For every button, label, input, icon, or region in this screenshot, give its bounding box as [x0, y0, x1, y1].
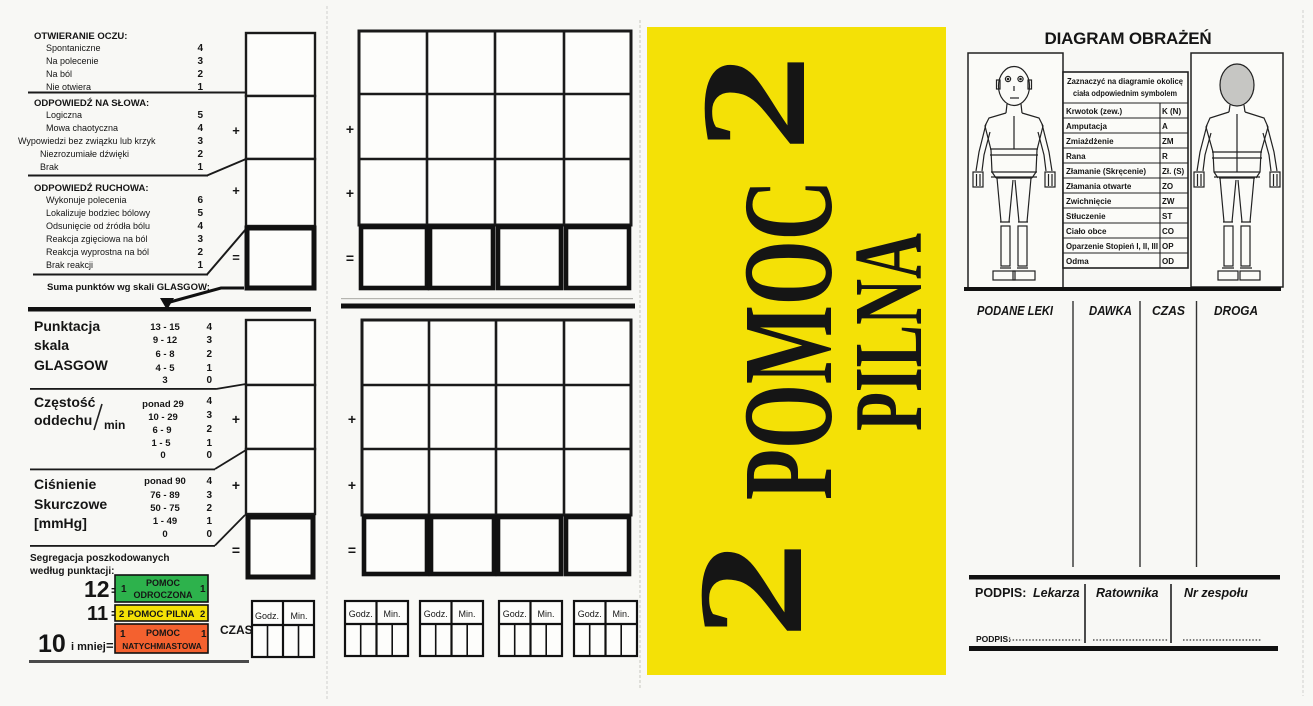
svg-text:3: 3 — [206, 410, 212, 421]
svg-text:i mniej: i mniej — [71, 641, 106, 653]
svg-text:10 - 29: 10 - 29 — [148, 412, 178, 423]
svg-text:Min.: Min. — [290, 611, 307, 621]
svg-text:1 - 49: 1 - 49 — [153, 516, 177, 527]
svg-text:POMOC: POMOC — [146, 628, 181, 638]
svg-text:1: 1 — [120, 629, 126, 640]
svg-text:2: 2 — [206, 503, 212, 514]
svg-text:2: 2 — [119, 609, 124, 620]
svg-text:=: = — [348, 542, 356, 558]
svg-text:11: 11 — [87, 603, 108, 625]
svg-text:=: = — [346, 250, 354, 266]
svg-text:POMOC PILNA: POMOC PILNA — [127, 609, 194, 620]
svg-text:4: 4 — [197, 123, 203, 134]
svg-text:4: 4 — [206, 476, 212, 487]
svg-text:1 - 5: 1 - 5 — [151, 438, 171, 449]
svg-text:ponad 90: ponad 90 — [144, 476, 186, 487]
svg-text:1: 1 — [200, 584, 206, 595]
svg-text:Ratownika: Ratownika — [1096, 586, 1159, 600]
svg-text:1: 1 — [197, 82, 203, 93]
svg-text:CZAS: CZAS — [1152, 303, 1185, 318]
svg-text:5: 5 — [197, 110, 203, 121]
svg-text:3: 3 — [206, 335, 212, 346]
svg-text:PILNA: PILNA — [835, 233, 943, 431]
svg-text:PODPIS:: PODPIS: — [976, 634, 1011, 644]
svg-text:6 - 8: 6 - 8 — [155, 349, 174, 360]
svg-text:3: 3 — [162, 375, 167, 386]
svg-text:Na polecenie: Na polecenie — [46, 56, 99, 66]
svg-text:Amputacja: Amputacja — [1066, 122, 1107, 131]
svg-text:Oparzenie Stopień I, II, III: Oparzenie Stopień I, II, III — [1066, 242, 1158, 251]
svg-text:Odsunięcie od źródła bólu: Odsunięcie od źródła bólu — [46, 221, 150, 231]
svg-text:2: 2 — [668, 541, 834, 639]
svg-text:1: 1 — [197, 162, 203, 173]
svg-text:3: 3 — [206, 490, 212, 501]
svg-text:R: R — [1162, 152, 1168, 161]
svg-text:5: 5 — [197, 208, 203, 219]
svg-text:[mmHg]: [mmHg] — [34, 515, 87, 531]
svg-text:Złamanie (Skręcenie): Złamanie (Skręcenie) — [1066, 167, 1146, 176]
svg-text:PODPIS:: PODPIS: — [975, 586, 1026, 600]
svg-text:Spontaniczne: Spontaniczne — [46, 43, 101, 53]
svg-text:Ciśnienie: Ciśnienie — [34, 476, 96, 492]
svg-text:Zmiażdżenie: Zmiażdżenie — [1066, 137, 1114, 146]
svg-text:+: + — [232, 477, 240, 493]
svg-text:Logiczna: Logiczna — [46, 110, 82, 120]
svg-text:DIAGRAM OBRAŻEŃ: DIAGRAM OBRAŻEŃ — [1045, 29, 1212, 48]
svg-text:Częstość: Częstość — [34, 394, 96, 410]
svg-text:1: 1 — [206, 363, 212, 374]
svg-text:NATYCHMIASTOWA: NATYCHMIASTOWA — [122, 641, 201, 651]
svg-text:2: 2 — [206, 349, 212, 360]
svg-text:9 - 12: 9 - 12 — [153, 335, 177, 346]
svg-text:Rana: Rana — [1066, 152, 1086, 161]
svg-text:3: 3 — [197, 136, 203, 147]
svg-text:1: 1 — [206, 438, 212, 449]
svg-text:4: 4 — [197, 43, 203, 54]
svg-text:skala: skala — [34, 337, 69, 353]
svg-text:Niezrozumiałe dźwięki: Niezrozumiałe dźwięki — [40, 149, 129, 159]
svg-text:Brak: Brak — [40, 162, 59, 172]
svg-text:2: 2 — [671, 54, 837, 152]
svg-text:ODROCZONA: ODROCZONA — [134, 590, 193, 600]
svg-text:Wypowiedzi bez związku lub krz: Wypowiedzi bez związku lub krzyk — [18, 136, 156, 146]
svg-text:Punktacja: Punktacja — [34, 318, 100, 334]
svg-text:0: 0 — [206, 450, 212, 461]
svg-text:0: 0 — [206, 529, 212, 540]
svg-text:=: = — [232, 250, 240, 265]
svg-text:ZW: ZW — [1162, 197, 1175, 206]
svg-text:ponad 29: ponad 29 — [142, 399, 184, 410]
svg-text:1: 1 — [201, 629, 207, 640]
svg-text:Nr zespołu: Nr zespołu — [1184, 586, 1248, 600]
svg-text:OP: OP — [1162, 242, 1174, 251]
svg-text:=: = — [106, 638, 114, 653]
svg-text:3: 3 — [197, 56, 203, 67]
svg-text:Nie otwiera: Nie otwiera — [46, 82, 91, 92]
svg-text:3: 3 — [197, 234, 203, 245]
svg-text:+: + — [232, 123, 240, 138]
svg-text:2: 2 — [206, 424, 212, 435]
svg-text:Reakcja wyprostna na ból: Reakcja wyprostna na ból — [46, 247, 149, 257]
svg-text:Odma: Odma — [1066, 257, 1089, 266]
svg-text:GLASGOW: GLASGOW — [34, 357, 109, 373]
svg-text:0: 0 — [206, 375, 212, 386]
svg-text:Reakcja zgięciowa na ból: Reakcja zgięciowa na ból — [46, 234, 148, 244]
svg-text:4 - 5: 4 - 5 — [155, 363, 175, 374]
svg-text:+: + — [348, 477, 356, 493]
svg-text:CO: CO — [1162, 227, 1174, 236]
svg-text:2: 2 — [197, 247, 203, 258]
svg-text:4: 4 — [206, 396, 212, 407]
svg-text:1: 1 — [197, 260, 203, 271]
svg-text:2: 2 — [197, 69, 203, 80]
svg-text:+: + — [346, 185, 354, 201]
svg-text:4: 4 — [197, 221, 203, 232]
svg-text:ZO: ZO — [1162, 182, 1173, 191]
svg-text:oddechu: oddechu — [34, 412, 92, 428]
svg-text:+: + — [346, 121, 354, 137]
svg-text:ZM: ZM — [1162, 137, 1174, 146]
svg-text:A: A — [1162, 122, 1168, 131]
svg-text:0: 0 — [160, 450, 165, 461]
svg-text:Ciało obce: Ciało obce — [1066, 227, 1107, 236]
svg-text:DAWKA: DAWKA — [1089, 303, 1132, 318]
svg-text:Skurczowe: Skurczowe — [34, 496, 107, 512]
svg-text:+: + — [232, 411, 240, 427]
svg-text:Godz.: Godz. — [255, 611, 279, 621]
svg-text:OD: OD — [1162, 257, 1174, 266]
svg-text:6 - 9: 6 - 9 — [152, 425, 171, 436]
svg-text:Stłuczenie: Stłuczenie — [1066, 212, 1106, 221]
svg-text:min: min — [104, 418, 125, 432]
svg-text:4: 4 — [206, 322, 212, 333]
svg-text:Zwichnięcie: Zwichnięcie — [1066, 197, 1112, 206]
svg-text:=: = — [232, 542, 240, 558]
svg-text:Brak reakcji: Brak reakcji — [46, 260, 93, 270]
svg-text:Mowa chaotyczna: Mowa chaotyczna — [46, 123, 118, 133]
svg-text:76 - 89: 76 - 89 — [150, 490, 180, 501]
svg-text:ciała odpowiednim symbolem: ciała odpowiednim symbolem — [1073, 89, 1177, 98]
svg-text:Zł. (S): Zł. (S) — [1162, 167, 1185, 176]
svg-text:+: + — [232, 183, 240, 198]
svg-text:1: 1 — [121, 584, 127, 595]
svg-text:2: 2 — [200, 609, 205, 620]
svg-text:ODPOWIEDŹ RUCHOWA:: ODPOWIEDŹ RUCHOWA: — [34, 183, 149, 194]
svg-text:6: 6 — [197, 195, 203, 206]
svg-text:ODPOWIEDŹ NA SŁOWA:: ODPOWIEDŹ NA SŁOWA: — [34, 98, 149, 109]
svg-text:0: 0 — [162, 529, 167, 540]
svg-text:50 - 75: 50 - 75 — [150, 503, 180, 514]
svg-text:12: 12 — [84, 576, 110, 602]
svg-text:POMOC: POMOC — [146, 578, 181, 588]
svg-text:Lokalizuje bodziec bólowy: Lokalizuje bodziec bólowy — [46, 208, 151, 218]
svg-text:Zaznaczyć na diagramie okolicę: Zaznaczyć na diagramie okolicę — [1067, 77, 1184, 86]
svg-text:1: 1 — [206, 516, 212, 527]
svg-text:13 - 15: 13 - 15 — [150, 322, 180, 333]
svg-text:PODANE LEKI: PODANE LEKI — [977, 303, 1053, 318]
svg-text:Segregacja poszkodowanych: Segregacja poszkodowanych — [30, 553, 170, 564]
svg-text:10: 10 — [38, 630, 66, 658]
svg-text:Lekarza: Lekarza — [1033, 586, 1080, 600]
svg-text:K (N): K (N) — [1162, 107, 1181, 116]
svg-text:Na ból: Na ból — [46, 69, 72, 79]
svg-text:Krwotok (zew.): Krwotok (zew.) — [1066, 107, 1122, 116]
svg-text:Suma punktów wg skali GLASGOW:: Suma punktów wg skali GLASGOW: — [47, 282, 210, 293]
svg-text:ST: ST — [1162, 212, 1172, 221]
svg-text:DROGA: DROGA — [1214, 303, 1258, 318]
svg-text:OTWIERANIE OCZU:: OTWIERANIE OCZU: — [34, 31, 127, 42]
svg-text:+: + — [348, 411, 356, 427]
svg-text:Wykonuje polecenia: Wykonuje polecenia — [46, 195, 126, 205]
svg-text:2: 2 — [197, 149, 203, 160]
svg-text:Złamania otwarte: Złamania otwarte — [1066, 182, 1132, 191]
